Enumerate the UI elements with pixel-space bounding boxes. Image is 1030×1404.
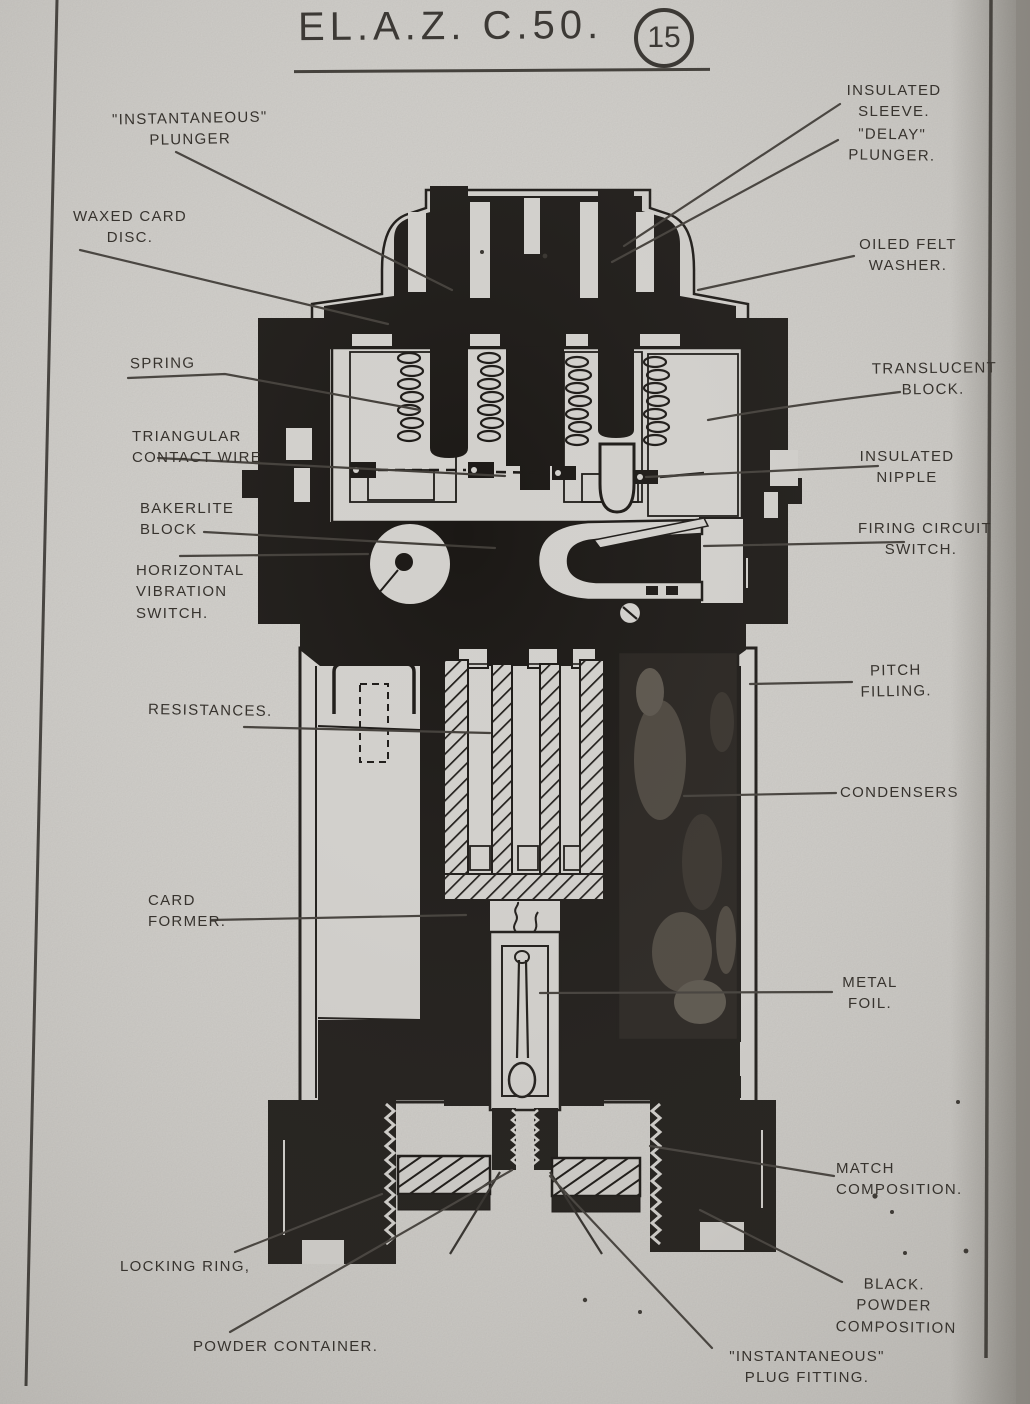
label-powder-container: POWDER CONTAINER. <box>193 1336 378 1357</box>
label-translucent-block: TRANSLUCENT BLOCK. <box>872 357 994 401</box>
label-instantaneous-plunger: "INSTANTANEOUS" PLUNGER <box>108 106 273 152</box>
figure-number-badge: 15 <box>634 8 694 68</box>
scanned-diagram-page: EL.A.Z. C.50. 15 "INSTANTANEOUS" PLUNGER… <box>0 0 1030 1404</box>
label-bakerlite-block: BAKERLITE BLOCK <box>140 498 234 541</box>
label-match-composition: MATCH COMPOSITION. <box>836 1158 962 1201</box>
label-resistances: RESISTANCES. <box>148 699 273 722</box>
label-spring: SPRING <box>130 353 196 375</box>
label-waxed-card-disc: WAXED CARD DISC. <box>62 206 198 249</box>
figure-number: 15 <box>647 21 680 55</box>
label-triangular-contact-wire: TRIANGULAR CONTACT WIRE <box>132 426 262 469</box>
label-locking-ring: LOCKING RING, <box>120 1256 250 1277</box>
label-horizontal-vibration-switch: HORIZONTAL VIBRATION SWITCH. <box>136 560 245 624</box>
label-condensers: CONDENSERS <box>840 782 959 803</box>
page-edge <box>1016 0 1030 1404</box>
label-card-former: CARD FORMER. <box>148 890 226 933</box>
label-insulated-nipple: INSULATED NIPPLE <box>852 446 962 489</box>
label-pitch-filling: PITCH FILLING. <box>850 659 943 703</box>
label-delay-plunger: "DELAY" PLUNGER. <box>836 123 949 167</box>
page-title: EL.A.Z. C.50. <box>298 3 628 50</box>
label-insulated-sleeve: INSULATED SLEEVE. <box>838 80 950 123</box>
label-firing-circuit-switch: FIRING CIRCUIT SWITCH. <box>858 518 984 561</box>
label-metal-foil: METAL FOIL. <box>828 972 912 1015</box>
label-instantaneous-plug-fitting: "INSTANTANEOUS" PLUG FITTING. <box>694 1346 920 1389</box>
label-black-powder-composition: BLACK. POWDER COMPOSITION <box>836 1273 953 1339</box>
label-oiled-felt-washer: OILED FELT WASHER. <box>852 234 964 277</box>
